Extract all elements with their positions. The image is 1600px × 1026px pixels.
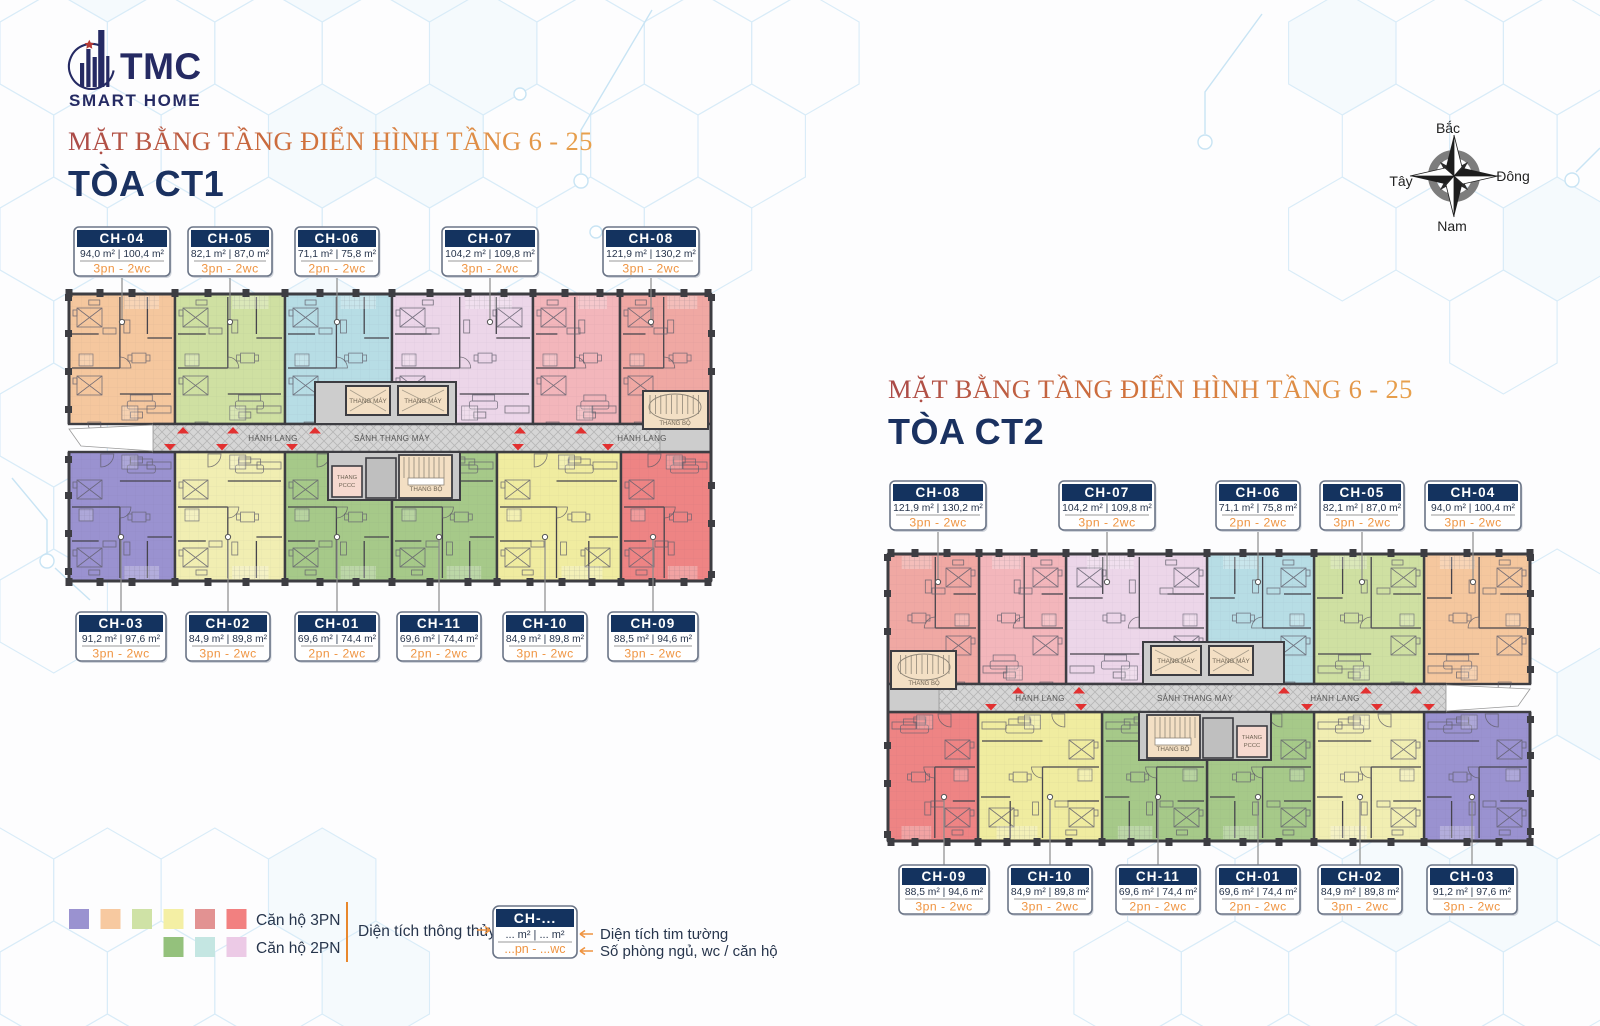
svg-text:CH-05: CH-05 [1339,485,1384,500]
svg-text:CH-05: CH-05 [207,231,252,246]
svg-text:Căn hộ 2PN: Căn hộ 2PN [256,940,340,957]
svg-text:TMC: TMC [120,46,202,87]
svg-text:CH-02: CH-02 [1337,869,1382,884]
svg-text:CH-09: CH-09 [630,616,675,631]
svg-text:69,6 m² | 74,4 m²: 69,6 m² | 74,4 m² [1119,887,1198,898]
svg-text:MẶT BẰNG TẦNG ĐIỂN HÌNH TẦNG 6: MẶT BẰNG TẦNG ĐIỂN HÌNH TẦNG 6 - 25 [68,125,593,156]
svg-text:Nam: Nam [1437,218,1467,234]
svg-text:3pn - 2wc: 3pn - 2wc [909,516,966,530]
svg-text:SẢNH THANG MÁY: SẢNH THANG MÁY [1157,694,1233,703]
svg-text:THANG BỘ: THANG BỘ [908,680,940,687]
svg-text:2pn - 2wc: 2pn - 2wc [1229,516,1286,530]
svg-text:TÒA CT1: TÒA CT1 [68,162,224,204]
svg-text:PCCC: PCCC [339,483,355,489]
svg-text:3pn - 2wc: 3pn - 2wc [93,262,150,276]
svg-text:84,9 m² | 89,8 m²: 84,9 m² | 89,8 m² [1011,887,1090,898]
svg-text:91,2 m² | 97,6 m²: 91,2 m² | 97,6 m² [1433,887,1512,898]
svg-text:SMART HOME: SMART HOME [69,91,201,110]
svg-text:3pn - 2wc: 3pn - 2wc [199,647,256,661]
svg-text:3pn - 2wc: 3pn - 2wc [1443,900,1500,914]
svg-text:... m² | ... m²: ... m² | ... m² [505,929,564,941]
svg-text:3pn - 2wc: 3pn - 2wc [92,647,149,661]
svg-text:THANG MÁY: THANG MÁY [1157,656,1195,665]
svg-text:CH-04: CH-04 [1450,485,1495,500]
svg-text:2pn - 2wc: 2pn - 2wc [1229,900,1286,914]
svg-text:THANG MÁY: THANG MÁY [1212,656,1250,665]
svg-text:88,5 m² | 94,6 m²: 88,5 m² | 94,6 m² [614,634,693,645]
svg-text:121,9 m² | 130,2 m²: 121,9 m² | 130,2 m² [606,249,696,260]
svg-text:Căn hộ 3PN: Căn hộ 3PN [256,912,340,929]
svg-text:2pn - 2wc: 2pn - 2wc [410,647,467,661]
svg-text:SẢNH THANG MÁY: SẢNH THANG MÁY [354,434,430,443]
svg-text:CH-08: CH-08 [915,485,960,500]
svg-text:94,0 m² | 100,4 m²: 94,0 m² | 100,4 m² [1431,503,1516,514]
svg-text:CH-11: CH-11 [417,616,461,631]
svg-text:3pn - 2wc: 3pn - 2wc [516,647,573,661]
svg-text:82,1 m² | 87,0 m²: 82,1 m² | 87,0 m² [1323,503,1402,514]
svg-text:104,2 m² | 109,8 m²: 104,2 m² | 109,8 m² [1062,503,1152,514]
svg-text:THANG BỘ: THANG BỘ [410,484,443,493]
svg-text:CH-11: CH-11 [1136,869,1180,884]
svg-text:CH-01: CH-01 [314,616,359,631]
svg-text:CH-04: CH-04 [99,231,144,246]
svg-text:CH-07: CH-07 [467,231,512,246]
svg-text:CH-03: CH-03 [98,616,143,631]
svg-text:Số phòng ngủ, wc / căn hộ: Số phòng ngủ, wc / căn hộ [600,943,778,960]
svg-text:3pn - 2wc: 3pn - 2wc [461,262,518,276]
svg-text:2pn - 2wc: 2pn - 2wc [308,647,365,661]
svg-text:84,9 m² | 89,8 m²: 84,9 m² | 89,8 m² [506,634,585,645]
svg-text:THANG: THANG [1242,735,1263,741]
svg-text:...pn - ...wc: ...pn - ...wc [504,942,565,956]
svg-text:3pn - 2wc: 3pn - 2wc [1333,516,1390,530]
svg-text:TÒA CT2: TÒA CT2 [888,410,1044,452]
svg-text:Diện tích tim tường: Diện tích tim tường [600,926,728,943]
svg-text:3pn - 2wc: 3pn - 2wc [1444,516,1501,530]
svg-text:HÀNH LANG: HÀNH LANG [248,434,297,443]
svg-text:THANG MÁY: THANG MÁY [404,396,442,405]
svg-text:Tây: Tây [1389,173,1412,189]
svg-text:CH-08: CH-08 [628,231,673,246]
svg-text:121,9 m² | 130,2 m²: 121,9 m² | 130,2 m² [893,503,983,514]
svg-text:69,6 m² | 74,4 m²: 69,6 m² | 74,4 m² [298,634,377,645]
svg-text:88,5 m² | 94,6 m²: 88,5 m² | 94,6 m² [905,887,984,898]
svg-text:CH-06: CH-06 [1235,485,1280,500]
svg-text:104,2 m² | 109,8 m²: 104,2 m² | 109,8 m² [445,249,535,260]
svg-text:PCCC: PCCC [1244,743,1260,749]
svg-text:2pn - 2wc: 2pn - 2wc [1129,900,1186,914]
svg-text:CH-03: CH-03 [1449,869,1494,884]
svg-text:CH-10: CH-10 [1027,869,1072,884]
svg-text:CH-...: CH-... [514,910,557,926]
svg-text:3pn - 2wc: 3pn - 2wc [624,647,681,661]
svg-text:THANG MÁY: THANG MÁY [349,396,387,405]
svg-text:84,9 m² | 89,8 m²: 84,9 m² | 89,8 m² [1321,887,1400,898]
svg-text:3pn - 2wc: 3pn - 2wc [1331,900,1388,914]
svg-text:71,1 m² | 75,8 m²: 71,1 m² | 75,8 m² [298,249,377,260]
svg-text:CH-06: CH-06 [314,231,359,246]
svg-text:69,6 m² | 74,4 m²: 69,6 m² | 74,4 m² [1219,887,1298,898]
svg-text:3pn - 2wc: 3pn - 2wc [622,262,679,276]
svg-text:3pn - 2wc: 3pn - 2wc [915,900,972,914]
svg-text:94,0 m² | 100,4 m²: 94,0 m² | 100,4 m² [80,249,165,260]
svg-text:Diện tích thông thủy: Diện tích thông thủy [358,923,496,940]
svg-text:CH-02: CH-02 [205,616,250,631]
svg-text:Bắc: Bắc [1436,120,1460,136]
svg-text:MẶT BẰNG TẦNG ĐIỂN HÌNH TẦNG 6: MẶT BẰNG TẦNG ĐIỂN HÌNH TẦNG 6 - 25 [888,373,1413,404]
svg-text:3pn - 2wc: 3pn - 2wc [1078,516,1135,530]
svg-text:82,1 m² | 87,0 m²: 82,1 m² | 87,0 m² [191,249,270,260]
svg-text:2pn - 2wc: 2pn - 2wc [308,262,365,276]
svg-text:3pn - 2wc: 3pn - 2wc [1021,900,1078,914]
svg-text:71,1 m² | 75,8 m²: 71,1 m² | 75,8 m² [1219,503,1298,514]
svg-text:CH-01: CH-01 [1235,869,1280,884]
svg-text:91,2 m² | 97,6 m²: 91,2 m² | 97,6 m² [82,634,161,645]
svg-text:HÀNH LANG: HÀNH LANG [1015,694,1064,703]
svg-text:THANG BỘ: THANG BỘ [659,420,691,427]
svg-text:THANG: THANG [337,475,358,481]
svg-text:69,6 m² | 74,4 m²: 69,6 m² | 74,4 m² [400,634,479,645]
svg-text:CH-10: CH-10 [522,616,567,631]
svg-text:THANG BỘ: THANG BỘ [1157,744,1190,753]
svg-text:HÀNH LANG: HÀNH LANG [617,434,666,443]
svg-text:3pn - 2wc: 3pn - 2wc [201,262,258,276]
svg-text:CH-09: CH-09 [921,869,966,884]
svg-text:Đông: Đông [1496,168,1529,184]
svg-text:CH-07: CH-07 [1084,485,1129,500]
svg-text:84,9 m² | 89,8 m²: 84,9 m² | 89,8 m² [189,634,268,645]
svg-text:HÀNH LANG: HÀNH LANG [1310,694,1359,703]
